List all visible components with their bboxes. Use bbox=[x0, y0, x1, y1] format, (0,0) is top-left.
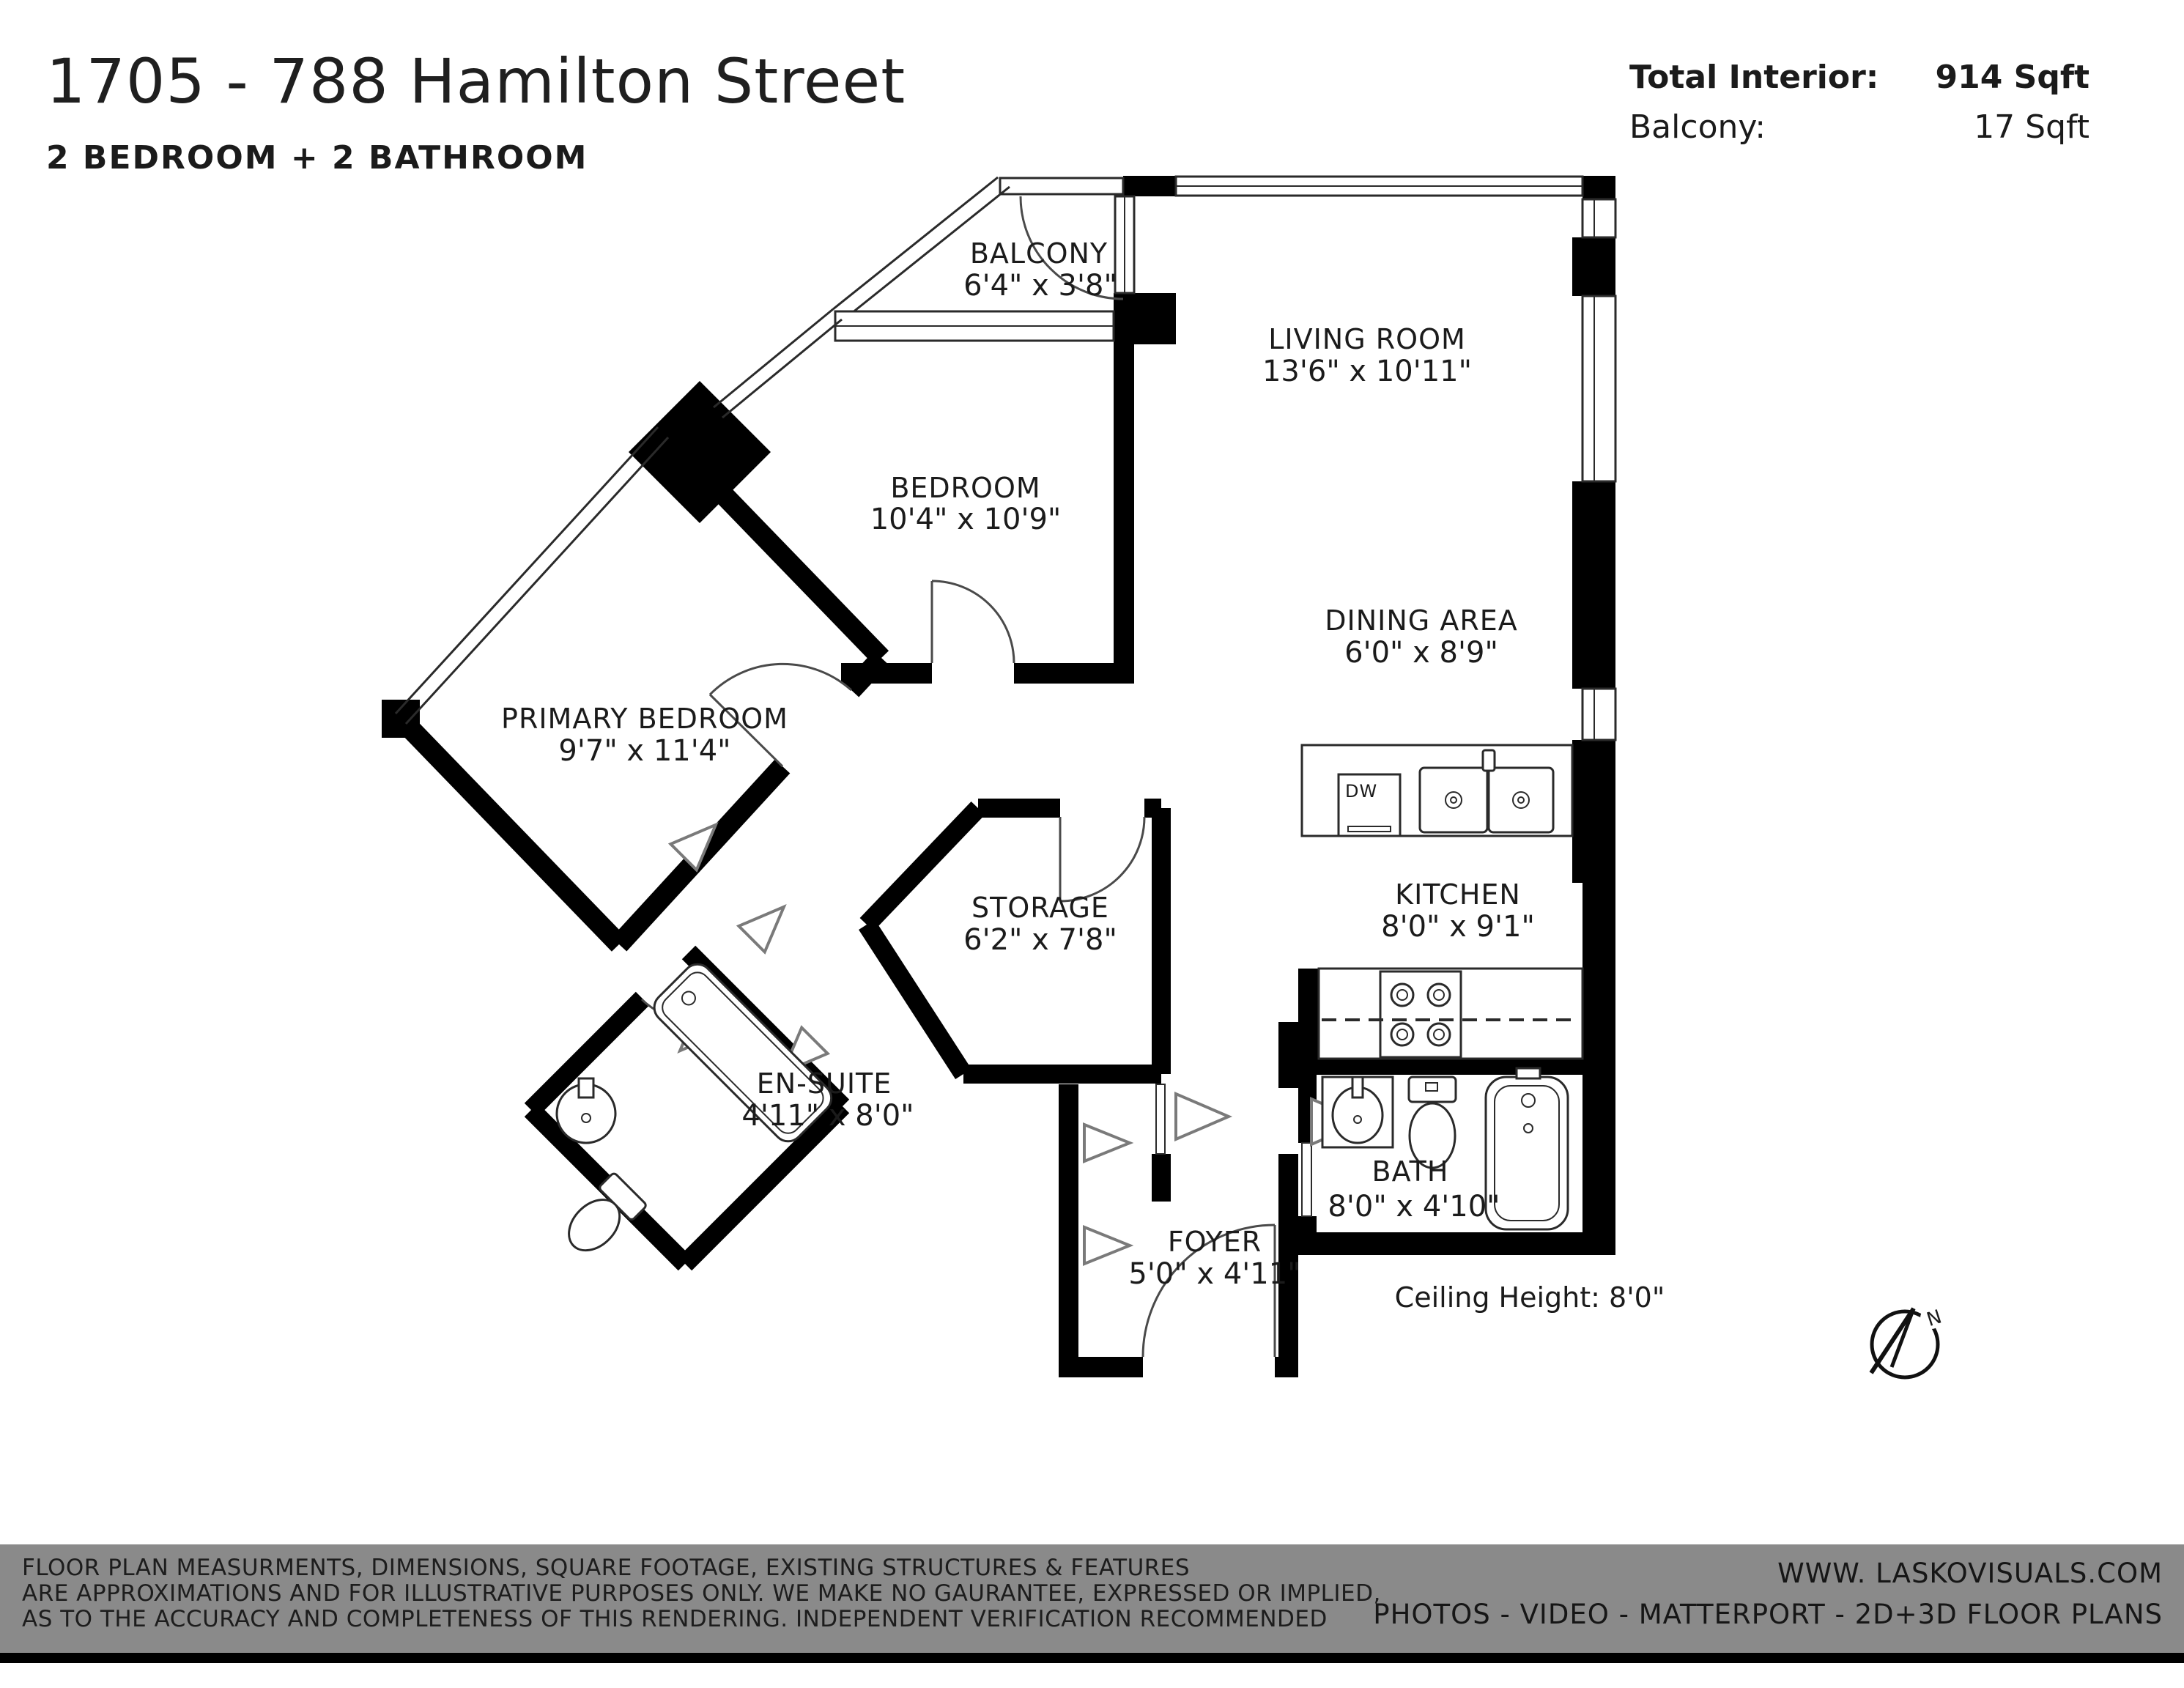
svg-text:9'7" x 11'4": 9'7" x 11'4" bbox=[558, 734, 730, 768]
doorway-arrow-icon bbox=[1176, 1094, 1229, 1139]
svg-text:EN-SUITE: EN-SUITE bbox=[757, 1067, 892, 1100]
svg-text:FOYER: FOYER bbox=[1168, 1226, 1262, 1258]
bedroom-corner-window bbox=[714, 309, 842, 418]
balcony-area-label: Balcony: bbox=[1629, 108, 1766, 146]
bath-sink-icon bbox=[1322, 1077, 1393, 1147]
closet-arrow-icon bbox=[1084, 1227, 1130, 1264]
svg-text:10'4" x 10'9": 10'4" x 10'9" bbox=[870, 503, 1062, 536]
doors bbox=[642, 196, 1311, 1357]
primary-bedroom-window bbox=[396, 427, 668, 724]
page-subtitle: 2 BEDROOM + 2 BATHROOM bbox=[46, 139, 588, 177]
svg-text:6'4" x 3'8": 6'4" x 3'8" bbox=[963, 269, 1117, 303]
hall-door-leaf bbox=[1156, 1084, 1165, 1154]
svg-text:6'2" x 7'8": 6'2" x 7'8" bbox=[963, 923, 1117, 957]
footer-strip bbox=[0, 1653, 2184, 1663]
storage-door-arc bbox=[1060, 817, 1144, 901]
bedroom-window-band bbox=[835, 311, 1114, 341]
footer-website: WWW. LASKOVISUALS.COM bbox=[1777, 1558, 2163, 1589]
room-label-ensuite: EN-SUITE 4'11" x 8'0" bbox=[741, 1067, 914, 1133]
svg-text:4'11" x 8'0": 4'11" x 8'0" bbox=[741, 1099, 914, 1133]
total-interior-label: Total Interior: bbox=[1629, 59, 1878, 96]
total-interior-value: 914 Sqft bbox=[1935, 59, 2089, 96]
ceiling-height-note: Ceiling Height: 8'0" bbox=[1395, 1281, 1665, 1314]
svg-text:DINING AREA: DINING AREA bbox=[1325, 604, 1517, 637]
room-label-bath: BATH 8'0" x 4'10" bbox=[1328, 1155, 1500, 1224]
disclaimer-line-3: AS TO THE ACCURACY AND COMPLETENESS OF T… bbox=[22, 1606, 1328, 1632]
svg-text:KITCHEN: KITCHEN bbox=[1395, 878, 1521, 911]
living-room-window-band bbox=[1176, 177, 1583, 196]
dishwasher-icon: DW bbox=[1339, 774, 1400, 836]
svg-text:PRIMARY BEDROOM: PRIMARY BEDROOM bbox=[501, 703, 788, 735]
page-title: 1705 - 788 Hamilton Street bbox=[46, 45, 906, 117]
room-label-kitchen: KITCHEN 8'0" x 9'1" bbox=[1381, 878, 1535, 944]
closet-arrow-icon bbox=[1084, 1125, 1130, 1161]
svg-text:LIVING ROOM: LIVING ROOM bbox=[1268, 323, 1466, 355]
primary-door-arc bbox=[710, 664, 851, 695]
svg-text:DW: DW bbox=[1345, 781, 1377, 802]
svg-text:5'0" x 4'11": 5'0" x 4'11" bbox=[1128, 1257, 1300, 1291]
svg-text:BATH: BATH bbox=[1372, 1155, 1449, 1188]
balcony-area-value: 17 Sqft bbox=[1974, 108, 2089, 146]
disclaimer-line-1: FLOOR PLAN MEASURMENTS, DIMENSIONS, SQUA… bbox=[22, 1555, 1190, 1581]
room-label-storage: STORAGE 6'2" x 7'8" bbox=[963, 892, 1117, 957]
closet-arrow-icon bbox=[739, 894, 796, 952]
compass-icon: N bbox=[1871, 1306, 1944, 1377]
svg-text:13'6" x 10'11": 13'6" x 10'11" bbox=[1262, 355, 1472, 388]
svg-text:6'0" x 8'9": 6'0" x 8'9" bbox=[1344, 636, 1498, 670]
svg-text:8'0" x 9'1": 8'0" x 9'1" bbox=[1381, 910, 1535, 944]
room-label-living-room: LIVING ROOM 13'6" x 10'11" bbox=[1262, 323, 1472, 388]
floor-plan: 1705 - 788 Hamilton Street 2 BEDROOM + 2… bbox=[0, 0, 2184, 1688]
footer: FLOOR PLAN MEASURMENTS, DIMENSIONS, SQUA… bbox=[0, 1544, 2184, 1663]
room-label-dining-area: DINING AREA 6'0" x 8'9" bbox=[1325, 604, 1517, 670]
room-label-bedroom: BEDROOM 10'4" x 10'9" bbox=[870, 472, 1062, 536]
stove-icon bbox=[1380, 971, 1461, 1057]
svg-text:8'0" x 4'10": 8'0" x 4'10" bbox=[1328, 1190, 1500, 1224]
svg-text:BALCONY: BALCONY bbox=[970, 237, 1108, 270]
ensuite-toilet-icon bbox=[557, 1172, 647, 1262]
room-label-primary-bedroom: PRIMARY BEDROOM 9'7" x 11'4" bbox=[501, 703, 788, 768]
bath-door-leaf bbox=[1302, 1143, 1311, 1216]
bedroom-door-arc bbox=[932, 581, 1014, 663]
balcony-door-window bbox=[1115, 196, 1134, 293]
footer-services: PHOTOS - VIDEO - MATTERPORT - 2D+3D FLOO… bbox=[1373, 1599, 2163, 1630]
svg-text:BEDROOM: BEDROOM bbox=[890, 472, 1040, 504]
disclaimer-line-2: ARE APPROXIMATIONS AND FOR ILLUSTRATIVE … bbox=[22, 1580, 1381, 1607]
floor-plan-page: 1705 - 788 Hamilton Street 2 BEDROOM + 2… bbox=[0, 0, 2184, 1688]
svg-text:STORAGE: STORAGE bbox=[971, 892, 1109, 924]
toilet-icon bbox=[1409, 1077, 1456, 1168]
room-label-balcony: BALCONY 6'4" x 3'8" bbox=[963, 237, 1117, 303]
